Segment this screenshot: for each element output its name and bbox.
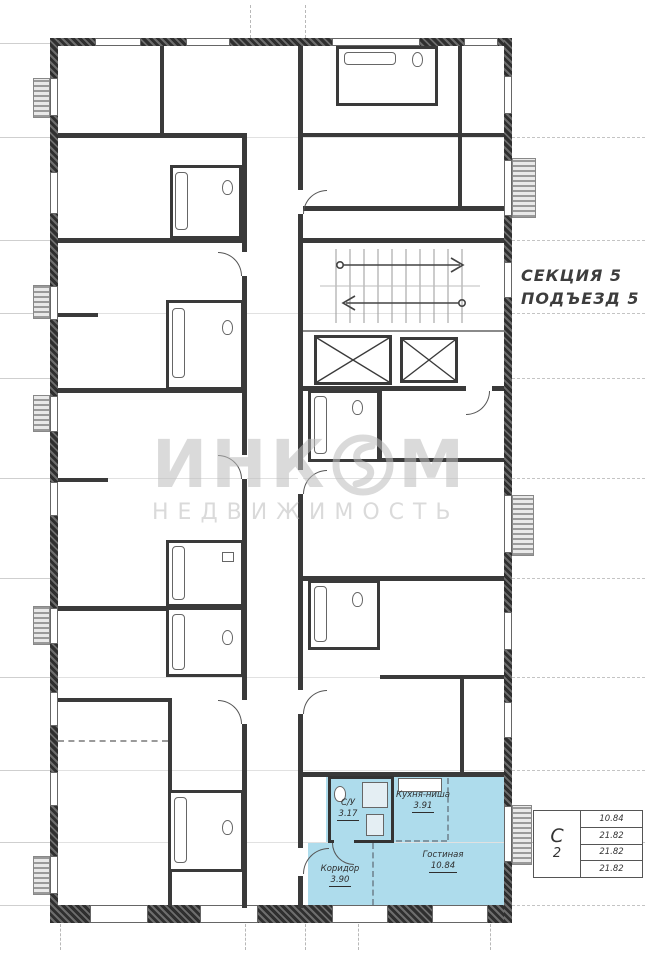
wall	[380, 458, 504, 462]
grid-line	[0, 842, 57, 843]
wall	[303, 206, 504, 211]
balcony-basket	[512, 495, 534, 556]
wall	[380, 675, 504, 679]
apartment-stamp: С 2 10.84 21.82 21.82 21.82	[533, 810, 643, 878]
wall	[58, 478, 108, 482]
balcony-basket	[512, 158, 536, 218]
sink	[222, 552, 234, 562]
stamp-area-row: 10.84	[581, 811, 642, 828]
room-area: 10.84	[429, 861, 457, 873]
grid-line	[512, 240, 645, 241]
stamp-type-cell: С 2	[534, 811, 581, 877]
window	[332, 905, 388, 923]
wall	[160, 46, 164, 134]
balcony-basket	[33, 606, 50, 645]
axis-line	[305, 924, 306, 950]
toilet	[222, 820, 233, 835]
wall	[58, 133, 247, 138]
window	[50, 78, 58, 116]
window	[95, 38, 141, 46]
window	[332, 38, 420, 46]
door-opening	[242, 455, 247, 479]
bathtub	[172, 308, 185, 378]
kitchen-zone-dashed	[396, 840, 447, 842]
grid-line	[512, 137, 645, 138]
bathtub	[314, 396, 327, 454]
balcony-basket	[33, 856, 50, 895]
grid-line	[512, 378, 645, 379]
grid-line	[57, 478, 504, 479]
balcony-basket	[33, 285, 50, 319]
window	[432, 905, 488, 923]
corridor-zone-dashed	[372, 843, 374, 905]
grid-line	[0, 240, 57, 241]
door-arc	[466, 391, 490, 415]
window	[50, 482, 58, 516]
grid-line	[0, 137, 57, 138]
stamp-area-row: 21.82	[581, 845, 642, 862]
grid-line	[0, 578, 57, 579]
room-area: 3.17	[337, 809, 360, 821]
toilet	[222, 320, 233, 335]
grid-line	[512, 578, 645, 579]
sink	[366, 814, 384, 836]
room-area: 3.90	[329, 875, 352, 887]
room-area: 3.91	[412, 801, 435, 813]
door-arc	[303, 470, 327, 494]
grid-line	[57, 842, 504, 843]
stamp-type-letter: С	[550, 827, 563, 846]
bathtub	[172, 614, 185, 670]
grid-line	[0, 378, 57, 379]
bathtub	[174, 797, 187, 863]
window	[504, 262, 512, 298]
grid-line	[512, 677, 645, 678]
grid-line	[512, 478, 645, 479]
axis-line	[490, 924, 491, 950]
bathtub	[314, 586, 327, 642]
stairs	[310, 243, 500, 329]
stamp-areas: 10.84 21.82 21.82 21.82	[581, 811, 642, 877]
wall	[58, 313, 98, 317]
floorplan-canvas: С/У 3.17 Кухня-ниша 3.91 Гостиная 10.84 …	[0, 0, 662, 960]
window	[50, 772, 58, 806]
window	[50, 172, 58, 214]
window	[50, 856, 58, 894]
section-label: СЕКЦИЯ 5 ПОДЪЕЗД 5	[521, 264, 640, 310]
axis-line	[250, 5, 251, 38]
toilet	[222, 180, 233, 195]
balcony-basket	[33, 78, 50, 118]
door-arc	[218, 252, 242, 276]
watermark-subtitle: НЕДВИЖИМОСТЬ	[152, 500, 468, 525]
axis-line	[358, 924, 359, 950]
window	[504, 612, 512, 650]
grid-line	[0, 905, 57, 906]
wall	[303, 330, 504, 332]
toilet	[352, 592, 363, 607]
grid-line	[512, 770, 645, 771]
grid-line	[0, 677, 57, 678]
door-arc	[218, 455, 242, 479]
door-opening	[242, 700, 247, 724]
axis-line	[60, 924, 61, 950]
wall	[458, 46, 462, 208]
stamp-rooms-count: 2	[553, 846, 561, 862]
room-name: Коридор	[321, 864, 360, 874]
grid-line	[512, 313, 645, 314]
bathtub	[344, 52, 396, 65]
window	[504, 702, 512, 738]
window	[464, 38, 498, 46]
balcony-basket	[33, 395, 50, 432]
window	[50, 692, 58, 726]
window	[200, 905, 258, 923]
section-line: СЕКЦИЯ 5	[521, 264, 640, 287]
entrance-line: ПОДЪЕЗД 5	[521, 287, 640, 310]
stamp-area-row: 21.82	[581, 861, 642, 877]
stamp-area-row: 21.82	[581, 828, 642, 845]
door-arc	[218, 700, 242, 724]
window	[50, 286, 58, 320]
axis-line	[245, 924, 246, 950]
door-arc	[303, 690, 327, 714]
toilet	[222, 630, 233, 645]
grid-line	[512, 905, 645, 906]
elevator-shaft	[400, 337, 458, 383]
window	[504, 495, 512, 553]
window	[90, 905, 148, 923]
balcony-basket	[512, 805, 532, 865]
window	[50, 396, 58, 432]
room-name: Гостиная	[423, 850, 464, 860]
room-label-living: Гостиная 10.84	[408, 850, 478, 873]
door-arc	[303, 190, 327, 214]
wall	[303, 133, 504, 137]
axis-line	[305, 5, 306, 38]
toilet	[352, 400, 363, 415]
grid-line	[57, 770, 504, 771]
watermark-text-right: М	[398, 432, 468, 498]
wall	[58, 698, 170, 702]
window	[50, 608, 58, 644]
room-label-su: С/У 3.17	[328, 798, 368, 821]
window	[504, 806, 512, 862]
grid-line	[0, 770, 57, 771]
room-name: Кухня-ниша	[396, 790, 450, 800]
bathtub	[175, 172, 188, 230]
window	[504, 76, 512, 114]
toilet	[412, 52, 423, 67]
grid-line	[0, 478, 57, 479]
grid-line	[0, 43, 57, 44]
room-name: С/У	[341, 798, 355, 808]
window	[186, 38, 230, 46]
door-opening	[242, 252, 247, 276]
wall	[460, 675, 464, 774]
elevator-shaft	[314, 335, 392, 385]
partition-dashed	[58, 740, 168, 742]
room-label-corridor: Коридор 3.90	[312, 864, 368, 887]
bathtub	[172, 546, 185, 600]
room-label-kitchen: Кухня-ниша 3.91	[392, 790, 454, 813]
window	[504, 160, 512, 216]
